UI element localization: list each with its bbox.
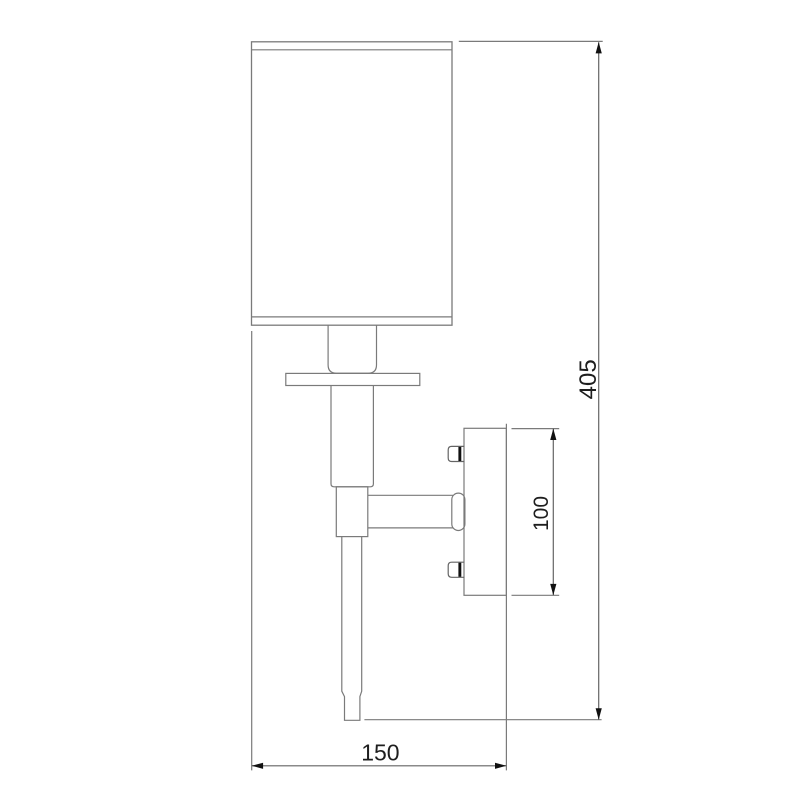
- svg-text:100: 100: [530, 496, 553, 531]
- svg-text:405: 405: [575, 359, 602, 399]
- svg-text:150: 150: [361, 739, 399, 765]
